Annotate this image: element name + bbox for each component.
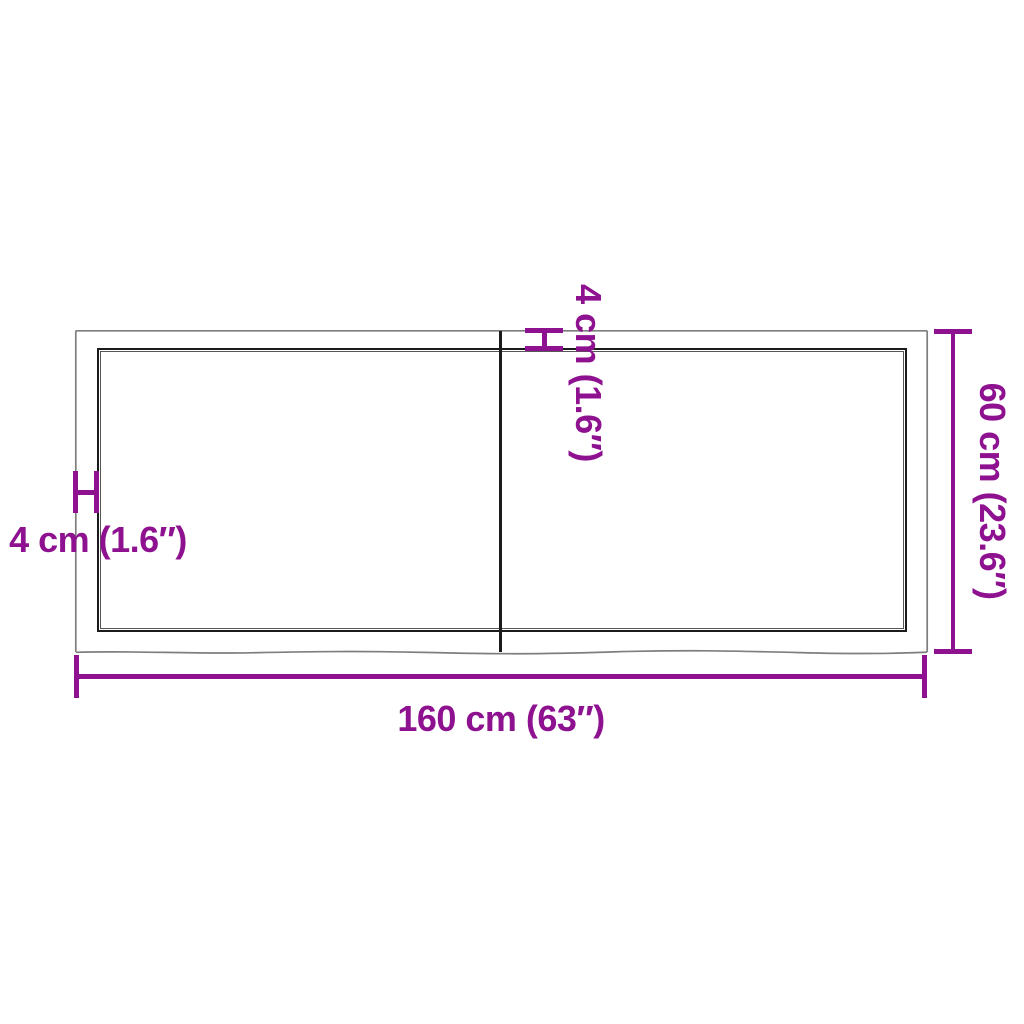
width-dimension-rule (74, 674, 927, 679)
thickness-marker-top-stem (542, 328, 547, 351)
product-dimension-diagram: 4 cm (1.6″) 4 cm (1.6″) 60 cm (23.6″) 16… (0, 0, 1024, 1024)
tabletop-inner-edge (97, 348, 907, 632)
height-dimension-rule (951, 329, 956, 654)
thickness-label-left: 4 cm (1.6″) (9, 519, 187, 561)
thickness-marker-left (73, 471, 99, 513)
height-dimension-line (934, 329, 972, 654)
width-label: 160 cm (63″) (397, 698, 604, 740)
thickness-marker-left-stem (73, 490, 99, 495)
tabletop-edge-profile-line (100, 351, 904, 629)
height-label: 60 cm (23.6″) (971, 383, 1013, 600)
plank-joint-line (499, 331, 502, 652)
width-dimension-line (74, 655, 927, 698)
thickness-marker-top (525, 328, 563, 351)
thickness-label-top: 4 cm (1.6″) (567, 284, 609, 462)
